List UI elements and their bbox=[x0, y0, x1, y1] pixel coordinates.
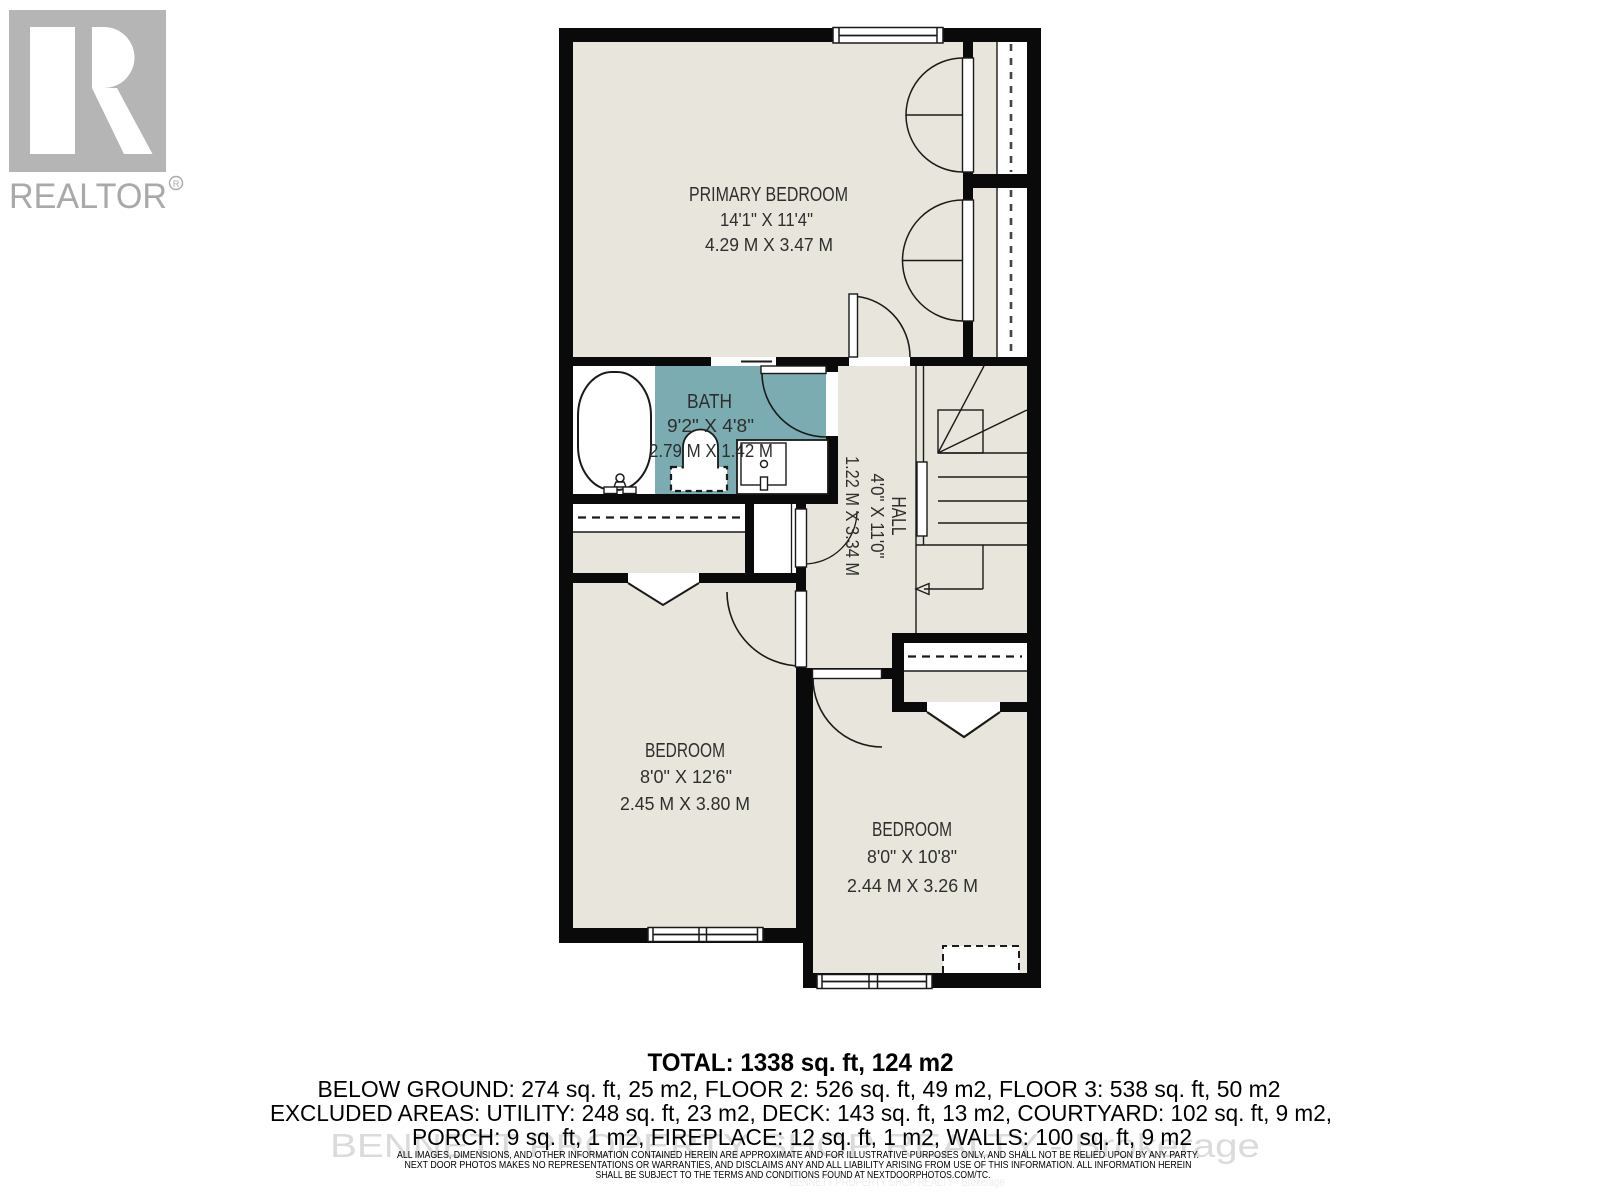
svg-text:2.45 M X 3.80 M: 2.45 M X 3.80 M bbox=[620, 794, 750, 814]
svg-text:9'2" X 4'8": 9'2" X 4'8" bbox=[667, 416, 754, 436]
svg-text:TOTAL: 1338 sq. ft, 124 m2: TOTAL: 1338 sq. ft, 124 m2 bbox=[648, 1049, 954, 1077]
svg-text:R: R bbox=[173, 179, 180, 189]
svg-text:4'0" X 11'0": 4'0" X 11'0" bbox=[867, 474, 887, 559]
svg-text:2.44 M X 3.26 M: 2.44 M X 3.26 M bbox=[847, 876, 978, 896]
svg-text:REALTOR: REALTOR bbox=[9, 177, 167, 216]
svg-text:PRIMARY BEDROOM: PRIMARY BEDROOM bbox=[689, 184, 848, 206]
svg-text:BATH: BATH bbox=[687, 391, 732, 413]
svg-text:BELOW GROUND: 274 sq. ft, 25 m: BELOW GROUND: 274 sq. ft, 25 m2, FLOOR 2… bbox=[318, 1076, 1281, 1102]
svg-text:SHALL BE SUBJECT TO THE TERMS: SHALL BE SUBJECT TO THE TERMS AND CONDIT… bbox=[596, 1169, 991, 1181]
svg-text:4.29 M X 3.47 M: 4.29 M X 3.47 M bbox=[705, 235, 833, 255]
svg-text:14'1" X 11'4": 14'1" X 11'4" bbox=[720, 210, 813, 230]
svg-text:8'0" X 12'6": 8'0" X 12'6" bbox=[640, 767, 732, 787]
svg-text:PORCH: 9 sq. ft, 1 m2, FIREPLA: PORCH: 9 sq. ft, 1 m2, FIREPLACE: 12 sq.… bbox=[412, 1124, 1192, 1150]
svg-text:8'0" X 10'8": 8'0" X 10'8" bbox=[867, 847, 957, 867]
svg-text:2.79 M X 1.42 M: 2.79 M X 1.42 M bbox=[649, 441, 773, 461]
svg-text:BEDROOM: BEDROOM bbox=[645, 740, 725, 762]
svg-text:BEDROOM: BEDROOM bbox=[872, 819, 952, 841]
svg-text:1.22 M X 3.34 M: 1.22 M X 3.34 M bbox=[842, 456, 862, 576]
svg-text:HALL: HALL bbox=[887, 497, 909, 536]
svg-text:EXCLUDED AREAS: UTILITY: 248 s: EXCLUDED AREAS: UTILITY: 248 sq. ft, 23 … bbox=[270, 1100, 1332, 1126]
